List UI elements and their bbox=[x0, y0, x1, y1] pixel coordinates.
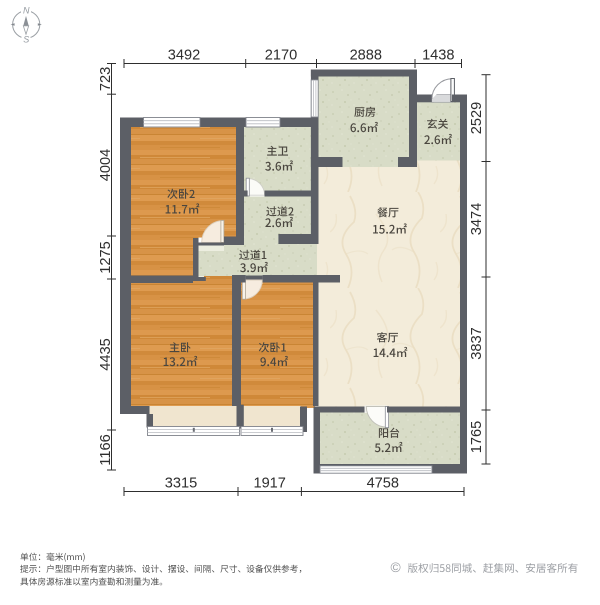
svg-text:1438: 1438 bbox=[422, 48, 454, 64]
svg-text:2170: 2170 bbox=[265, 48, 297, 64]
svg-text:2529: 2529 bbox=[469, 102, 485, 134]
svg-text:1765: 1765 bbox=[469, 421, 485, 453]
svg-text:1166: 1166 bbox=[98, 434, 114, 465]
svg-text:3492: 3492 bbox=[168, 48, 200, 64]
svg-text:S: S bbox=[23, 34, 29, 44]
svg-text:723: 723 bbox=[98, 67, 114, 91]
svg-text:1275: 1275 bbox=[98, 241, 114, 273]
svg-text:3474: 3474 bbox=[469, 203, 485, 235]
svg-text:4758: 4758 bbox=[367, 476, 399, 492]
svg-text:©: © bbox=[391, 560, 401, 575]
svg-text:2888: 2888 bbox=[350, 48, 382, 64]
svg-text:3837: 3837 bbox=[469, 327, 485, 359]
svg-text:N: N bbox=[23, 5, 30, 15]
svg-text:4004: 4004 bbox=[98, 149, 114, 181]
svg-text:4435: 4435 bbox=[98, 338, 114, 370]
svg-text:3315: 3315 bbox=[165, 476, 197, 492]
svg-text:1917: 1917 bbox=[253, 476, 285, 492]
